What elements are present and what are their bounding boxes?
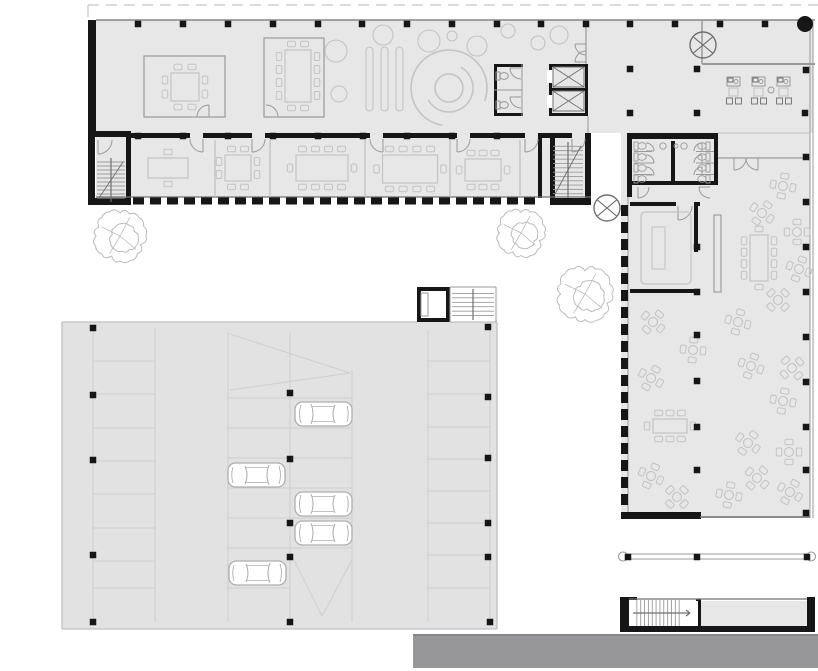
column bbox=[485, 554, 492, 561]
mullion bbox=[621, 307, 628, 318]
wall bbox=[630, 202, 676, 206]
column bbox=[287, 390, 294, 397]
column bbox=[487, 619, 494, 626]
column bbox=[803, 467, 810, 474]
mullion bbox=[621, 358, 628, 369]
mullion bbox=[621, 426, 628, 437]
car-body bbox=[295, 521, 352, 545]
mullion bbox=[303, 198, 314, 205]
trees bbox=[94, 209, 614, 322]
filled-dot bbox=[797, 16, 813, 32]
column bbox=[538, 21, 545, 28]
column bbox=[694, 332, 701, 339]
column bbox=[135, 21, 142, 28]
column bbox=[449, 133, 456, 140]
mullion bbox=[201, 198, 212, 205]
wall bbox=[88, 198, 130, 205]
column bbox=[90, 392, 97, 399]
column bbox=[694, 378, 701, 385]
tree-branch bbox=[120, 218, 130, 236]
tree-branch bbox=[585, 274, 595, 294]
column bbox=[404, 133, 411, 140]
mullion bbox=[269, 198, 280, 205]
road bbox=[413, 635, 818, 668]
column bbox=[360, 133, 367, 140]
mullion bbox=[621, 392, 628, 403]
stair-run bbox=[452, 289, 494, 320]
opening bbox=[547, 70, 553, 83]
column bbox=[287, 619, 294, 626]
car-body bbox=[295, 402, 352, 426]
wall bbox=[627, 133, 632, 197]
column bbox=[672, 21, 679, 28]
tree bbox=[497, 209, 546, 257]
mullion bbox=[621, 239, 628, 250]
tree bbox=[557, 266, 613, 322]
column bbox=[803, 379, 810, 386]
column bbox=[694, 554, 701, 561]
tree-branch bbox=[585, 294, 602, 308]
column bbox=[694, 424, 701, 431]
mullion bbox=[621, 324, 628, 335]
column bbox=[494, 133, 501, 140]
mullion bbox=[184, 198, 195, 205]
column bbox=[694, 467, 701, 474]
mullion bbox=[524, 198, 535, 205]
circle-cross-symbol bbox=[594, 195, 620, 221]
column bbox=[803, 244, 810, 251]
mullion bbox=[621, 494, 628, 505]
mullion bbox=[422, 198, 433, 205]
tree-branch bbox=[521, 216, 530, 233]
mullion bbox=[621, 341, 628, 352]
column bbox=[90, 457, 97, 464]
car bbox=[295, 521, 352, 545]
main-wing-floor bbox=[96, 20, 588, 197]
column bbox=[449, 21, 456, 28]
column bbox=[694, 289, 701, 296]
column bbox=[485, 324, 492, 331]
mullion bbox=[456, 198, 467, 205]
wall bbox=[550, 198, 591, 205]
column bbox=[287, 520, 294, 527]
site-lines bbox=[88, 5, 818, 17]
floor-plan-drawing bbox=[0, 0, 818, 671]
mullion bbox=[286, 198, 297, 205]
south-block-room bbox=[700, 601, 807, 626]
mullion bbox=[473, 198, 484, 205]
column bbox=[627, 21, 634, 28]
column bbox=[762, 21, 769, 28]
mullion bbox=[133, 198, 144, 205]
wall bbox=[446, 287, 450, 322]
mullion bbox=[167, 198, 178, 205]
mullion bbox=[621, 443, 628, 454]
floor-plan-canvas bbox=[0, 0, 818, 671]
car-body bbox=[229, 561, 286, 585]
column bbox=[225, 133, 232, 140]
wall bbox=[550, 133, 555, 198]
column bbox=[583, 21, 590, 28]
wall bbox=[126, 131, 131, 205]
column bbox=[717, 21, 724, 28]
column bbox=[180, 21, 187, 28]
column bbox=[315, 133, 322, 140]
mullion bbox=[252, 198, 263, 205]
column bbox=[803, 67, 810, 74]
column bbox=[803, 334, 810, 341]
column bbox=[802, 110, 809, 117]
tree-branch bbox=[120, 236, 136, 249]
wall bbox=[494, 64, 523, 67]
wall bbox=[417, 287, 421, 322]
column bbox=[359, 21, 366, 28]
wall bbox=[417, 318, 450, 322]
car bbox=[229, 561, 286, 585]
mullion bbox=[371, 198, 382, 205]
column bbox=[270, 133, 277, 140]
column bbox=[485, 394, 492, 401]
wall bbox=[630, 289, 698, 293]
column bbox=[627, 66, 634, 73]
mullion bbox=[150, 198, 161, 205]
car-body bbox=[228, 463, 285, 487]
car bbox=[295, 492, 352, 516]
wall bbox=[88, 20, 96, 133]
wall bbox=[620, 626, 815, 632]
mullion bbox=[621, 222, 628, 233]
column bbox=[315, 21, 322, 28]
column bbox=[625, 554, 632, 561]
column bbox=[694, 244, 701, 251]
column bbox=[404, 21, 411, 28]
column bbox=[485, 455, 492, 462]
car bbox=[295, 402, 352, 426]
mullion bbox=[621, 205, 628, 216]
wall bbox=[630, 133, 718, 139]
column bbox=[180, 133, 187, 140]
mullion bbox=[621, 375, 628, 386]
mullion bbox=[235, 198, 246, 205]
tree-branch bbox=[101, 227, 120, 236]
opening bbox=[421, 291, 446, 318]
column bbox=[225, 21, 232, 28]
column bbox=[135, 133, 142, 140]
column bbox=[287, 456, 294, 463]
column bbox=[90, 325, 97, 332]
mullion bbox=[621, 290, 628, 301]
wall bbox=[383, 133, 457, 138]
mullion bbox=[337, 198, 348, 205]
wall bbox=[494, 113, 523, 116]
mullion bbox=[388, 198, 399, 205]
mullion bbox=[621, 409, 628, 420]
tree-branch bbox=[504, 225, 521, 233]
mullion bbox=[621, 273, 628, 284]
mullion bbox=[507, 198, 518, 205]
mullion bbox=[354, 198, 365, 205]
wall bbox=[417, 287, 450, 291]
column bbox=[90, 552, 97, 559]
mullion bbox=[621, 460, 628, 471]
mullion bbox=[439, 198, 450, 205]
tree bbox=[94, 210, 147, 263]
wall bbox=[621, 512, 701, 519]
column bbox=[494, 21, 501, 28]
wall bbox=[585, 133, 591, 198]
wall bbox=[538, 133, 542, 198]
column bbox=[803, 424, 810, 431]
column bbox=[270, 21, 277, 28]
wall bbox=[549, 113, 588, 116]
column bbox=[90, 619, 97, 626]
column bbox=[287, 554, 294, 561]
mullion bbox=[218, 198, 229, 205]
column bbox=[804, 554, 811, 561]
column bbox=[803, 199, 810, 206]
mullion bbox=[320, 198, 331, 205]
car bbox=[228, 463, 285, 487]
column bbox=[803, 510, 810, 517]
mullion bbox=[621, 477, 628, 488]
mullion bbox=[490, 198, 501, 205]
column bbox=[803, 289, 810, 296]
mullion bbox=[621, 256, 628, 267]
column bbox=[485, 520, 492, 527]
tree-branch bbox=[521, 233, 536, 245]
car-body bbox=[295, 492, 352, 516]
wall bbox=[714, 139, 718, 185]
wall bbox=[88, 133, 95, 205]
column bbox=[627, 110, 634, 117]
mullion bbox=[405, 198, 416, 205]
column bbox=[803, 154, 810, 161]
opening bbox=[547, 95, 553, 108]
column bbox=[694, 66, 701, 73]
column bbox=[694, 110, 701, 117]
